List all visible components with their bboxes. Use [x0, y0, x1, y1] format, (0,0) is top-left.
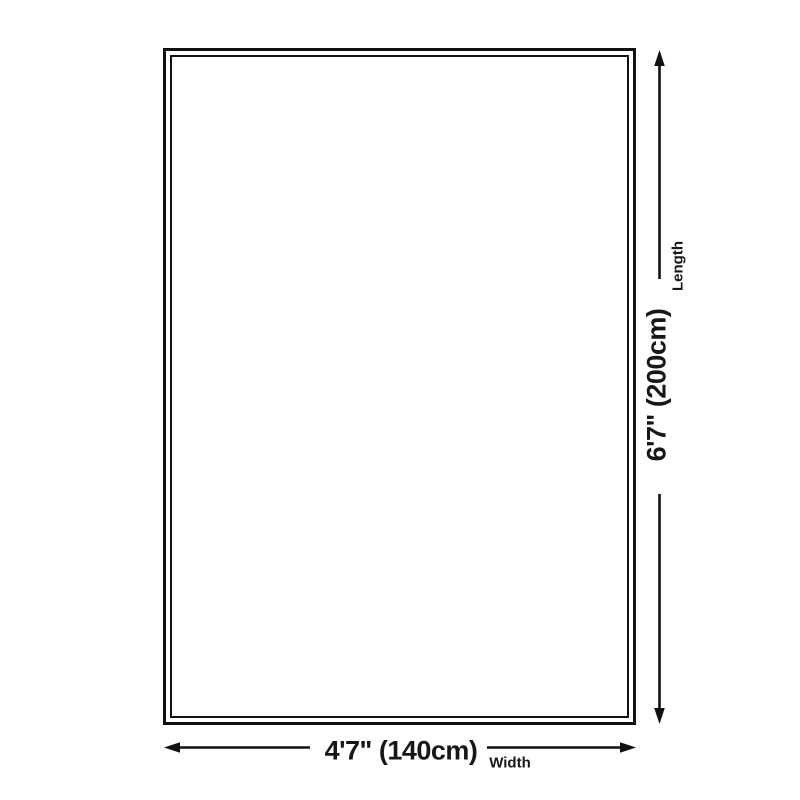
arrow-right-head-icon	[620, 742, 636, 753]
length-label: Length	[671, 241, 686, 291]
arrow-up-head-icon	[654, 50, 665, 66]
arrow-down-head-icon	[654, 708, 665, 724]
dimension-diagram: 6'7" (200cm) Length 4'7" (140cm) Width	[0, 0, 800, 800]
width-label: Width	[489, 756, 531, 771]
rug-outer-border	[163, 48, 636, 725]
rug-inner-border	[170, 55, 629, 718]
width-value: 4'7" (140cm)	[325, 738, 478, 765]
length-value: 6'7" (200cm)	[644, 309, 671, 462]
arrow-left-head-icon	[164, 742, 180, 753]
